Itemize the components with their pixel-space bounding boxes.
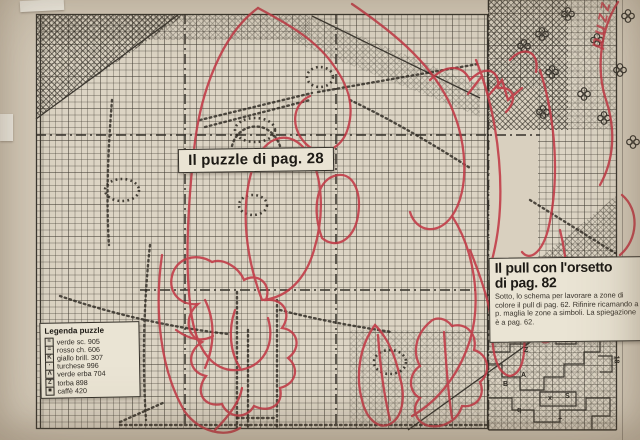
legend-title: Legenda puzzle	[44, 325, 134, 336]
zone-row-label: 18	[612, 356, 619, 364]
legend-symbol: ■	[45, 386, 54, 395]
zone-letter: +	[558, 416, 562, 423]
paper-scrap-left	[0, 114, 13, 141]
zone-letter: x	[548, 395, 552, 402]
article-title-line2: di pag. 82	[495, 274, 640, 291]
article-body: Sotto, lo schema per lavorare a zone di …	[495, 291, 640, 327]
zone-letter: q	[517, 407, 521, 414]
legend-row: ■ caffè 420	[45, 385, 135, 395]
zone-letter: A	[521, 372, 526, 379]
magazine-page: { "page": { "puzzle_label": "Il puzzle d…	[0, 0, 640, 440]
legend-box: Legenda puzzle ≡ verde sc. 905 = rosso c…	[39, 321, 140, 399]
legend-label: caffè 420	[57, 386, 87, 396]
zone-letter: Z	[524, 347, 528, 354]
stitch-texture-righttop	[488, 0, 568, 130]
article-title-line1: Il pull con l'orsetto	[495, 259, 640, 276]
article-caption: Il pull con l'orsetto di pag. 82 Sotto, …	[489, 256, 640, 343]
paper-scrap-top	[20, 0, 65, 12]
zone-letter: B	[503, 381, 508, 388]
stitch-texture-leaves	[350, 330, 482, 428]
stitch-texture-topstrip	[36, 14, 310, 40]
puzzle-caption: Il puzzle di pag. 28	[178, 147, 334, 173]
zone-letter: S	[565, 393, 570, 400]
